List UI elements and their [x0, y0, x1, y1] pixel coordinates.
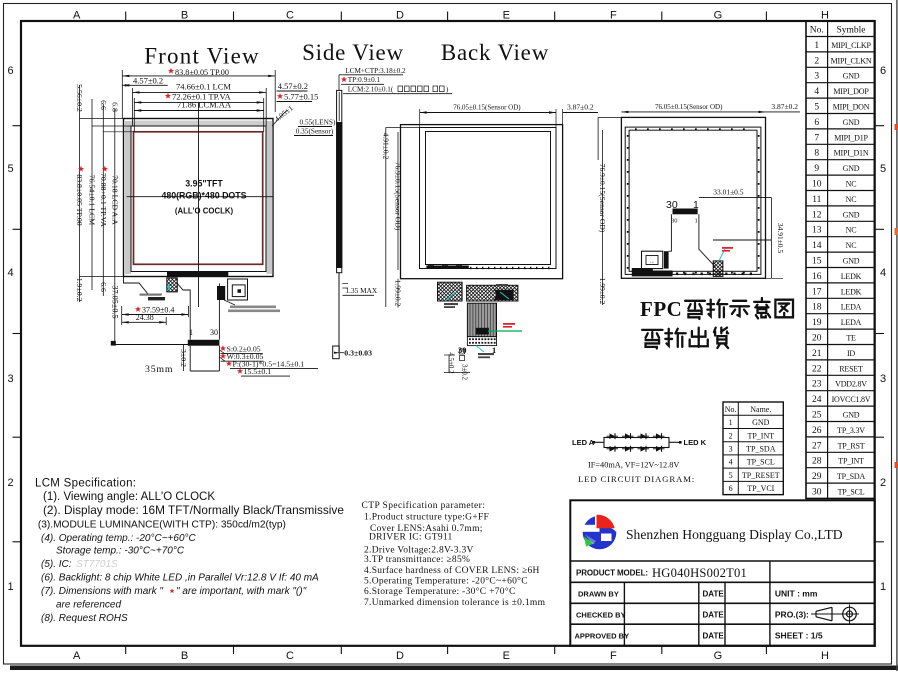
- svg-text:DRIVER IC: GT911: DRIVER IC: GT911: [369, 533, 453, 543]
- svg-text:20: 20: [812, 334, 822, 344]
- svg-text:E: E: [503, 10, 510, 22]
- svg-text:21: 21: [812, 349, 822, 359]
- svg-text:MIPI_CLKN: MIPI_CLKN: [831, 56, 872, 65]
- svg-text:3.95"TFT: 3.95"TFT: [185, 179, 223, 189]
- svg-text:TP_RST: TP_RST: [838, 441, 865, 450]
- svg-text:TP_SDA: TP_SDA: [746, 444, 776, 453]
- svg-text:PRODUCT MODEL:: PRODUCT MODEL:: [576, 569, 648, 578]
- svg-text:CHECKED BY: CHECKED BY: [576, 611, 626, 620]
- svg-text:(1). Viewing angle: ALL'O C: (1). Viewing angle: ALL'O CLOCK: [43, 491, 215, 503]
- svg-text:37.05±0.5: 37.05±0.5: [110, 285, 119, 318]
- svg-text:LED CIRCUIT DIAGRAM:: LED CIRCUIT DIAGRAM:: [578, 474, 695, 484]
- svg-text:LED K: LED K: [684, 438, 707, 447]
- svg-text:9: 9: [814, 164, 819, 174]
- svg-text:VDD2.8V: VDD2.8V: [835, 380, 867, 389]
- svg-text:TP_VCI: TP_VCI: [747, 484, 774, 493]
- svg-text:3: 3: [729, 444, 733, 453]
- svg-text:5: 5: [814, 103, 819, 113]
- svg-text:E: E: [503, 650, 510, 662]
- svg-text:ST7701S: ST7701S: [76, 559, 118, 570]
- svg-text:6: 6: [729, 484, 733, 493]
- svg-text:35mm: 35mm: [145, 364, 173, 375]
- svg-text:5.77±0.15: 5.77±0.15: [284, 92, 318, 102]
- svg-text:4: 4: [814, 87, 819, 97]
- svg-text:H: H: [821, 10, 829, 22]
- svg-text:6: 6: [880, 65, 886, 77]
- svg-text:16: 16: [812, 272, 822, 282]
- svg-text:3.TP transmittance: ≥85%: 3.TP transmittance: ≥85%: [364, 555, 470, 565]
- svg-text:LEDA: LEDA: [841, 303, 862, 312]
- svg-text:TP_SDA: TP_SDA: [837, 472, 866, 481]
- svg-text:FPC: FPC: [640, 297, 682, 321]
- svg-text:3.87±0.2: 3.87±0.2: [567, 103, 594, 112]
- svg-text:UNIT : mm: UNIT : mm: [775, 589, 818, 599]
- svg-text:5.56±0.2: 5.56±0.2: [75, 84, 84, 112]
- svg-text:LEDK: LEDK: [841, 272, 862, 281]
- svg-text:(7). Dimensions with mark: (7). Dimensions with mark ": [41, 586, 163, 597]
- svg-text:3: 3: [7, 373, 13, 385]
- svg-text:F: F: [610, 10, 617, 22]
- svg-text:LCM Specification:: LCM Specification:: [35, 478, 136, 490]
- svg-text:GND: GND: [843, 257, 860, 266]
- svg-text:MIPI_CLKP: MIPI_CLKP: [831, 41, 871, 50]
- svg-text:H: H: [821, 650, 829, 662]
- svg-text:30: 30: [812, 488, 822, 498]
- svg-text:LED A: LED A: [572, 438, 595, 447]
- svg-text:76.05±0.15(Sensor OD): 76.05±0.15(Sensor OD): [453, 104, 521, 112]
- svg-text:DATE: DATE: [703, 611, 725, 620]
- svg-text:LCM:2.10±0.1(: LCM:2.10±0.1(: [348, 86, 394, 94]
- svg-text:" are important, with mark: " are important, with mark "()": [176, 586, 307, 597]
- svg-text:6.6: 6.6: [99, 100, 108, 110]
- svg-text:APPROVED BY: APPROVED BY: [575, 632, 630, 641]
- svg-text:5.Operating Temperature: -20°: 5.Operating Temperature: -20°C~+60°C: [364, 576, 528, 587]
- svg-text:14: 14: [812, 241, 822, 251]
- svg-text:7.Unmarked dimension tolerance: 7.Unmarked dimension tolerance is ±0.1mm: [364, 598, 546, 608]
- svg-text:6.Storage Temperature: -30°C: 6.Storage Temperature: -30°C +70°C: [364, 586, 516, 597]
- svg-text:B: B: [181, 10, 188, 22]
- svg-text:LEDA: LEDA: [841, 318, 862, 327]
- svg-text:Back View: Back View: [441, 40, 549, 65]
- svg-text:1: 1: [7, 581, 13, 593]
- svg-text:18: 18: [812, 303, 822, 313]
- svg-text:13: 13: [812, 226, 822, 236]
- svg-text:1: 1: [814, 41, 819, 51]
- svg-text:TP_SCL: TP_SCL: [838, 488, 865, 497]
- svg-text:GND: GND: [843, 118, 860, 127]
- svg-text:8: 8: [814, 149, 819, 159]
- svg-text:IOVCC1.8V: IOVCC1.8V: [832, 395, 871, 404]
- svg-text:4: 4: [880, 267, 886, 279]
- svg-text:are referenced: are referenced: [56, 600, 121, 611]
- svg-text:76.54±0.1 LCM: 76.54±0.1 LCM: [88, 175, 97, 225]
- svg-text:15: 15: [812, 257, 822, 267]
- svg-text:0.3±0.03: 0.3±0.03: [344, 349, 372, 358]
- svg-text:LEDK: LEDK: [841, 287, 862, 296]
- svg-text:IF=40mA, VF=12V~12.8V: IF=40mA, VF=12V~12.8V: [588, 461, 679, 470]
- svg-text:(8). Request ROHS: (8). Request ROHS: [41, 613, 128, 624]
- svg-text:C: C: [286, 650, 294, 662]
- svg-text:ID: ID: [847, 349, 855, 358]
- svg-text:LCM+CTP:3.18±0.2: LCM+CTP:3.18±0.2: [345, 67, 406, 75]
- svg-text:0.35(Sensor): 0.35(Sensor): [296, 127, 334, 136]
- svg-text:30: 30: [210, 328, 218, 337]
- svg-text:GND: GND: [843, 210, 860, 219]
- svg-text:TP_INT: TP_INT: [838, 457, 864, 466]
- svg-text:DATE: DATE: [703, 590, 725, 599]
- svg-text:4.57±0.2: 4.57±0.2: [133, 76, 163, 86]
- svg-text:12: 12: [812, 210, 822, 220]
- svg-text:F: F: [610, 650, 617, 662]
- svg-text:3: 3: [814, 72, 819, 82]
- svg-text:6: 6: [7, 65, 13, 77]
- svg-text:19: 19: [812, 318, 822, 328]
- svg-text:28: 28: [812, 457, 822, 467]
- svg-text:76.05±0.15(Sensor OD): 76.05±0.15(Sensor OD): [655, 103, 723, 111]
- svg-text:30: 30: [671, 218, 678, 225]
- svg-text:GND: GND: [843, 72, 860, 81]
- svg-text:(5). IC:: (5). IC:: [41, 559, 72, 570]
- svg-text:MIPI_D1P: MIPI_D1P: [834, 133, 868, 142]
- svg-text:No.: No.: [725, 405, 737, 414]
- svg-text:74.66±0.1 LCM: 74.66±0.1 LCM: [176, 82, 231, 92]
- svg-text:PRO.(3):: PRO.(3):: [775, 610, 809, 620]
- svg-text:Name.: Name.: [750, 405, 771, 414]
- svg-text:29: 29: [812, 472, 822, 482]
- svg-text:70.88+0.1 TP.VA: 70.88+0.1 TP.VA: [99, 173, 108, 227]
- svg-text:1: 1: [695, 218, 698, 225]
- svg-text:NC: NC: [846, 226, 857, 235]
- svg-text:5: 5: [880, 163, 886, 175]
- svg-text:MIPI_DON: MIPI_DON: [833, 103, 870, 112]
- svg-text:4: 4: [729, 458, 733, 467]
- svg-text:GND: GND: [843, 164, 860, 173]
- svg-text:MIPI_DOP: MIPI_DOP: [833, 87, 869, 96]
- svg-text:4: 4: [7, 267, 13, 279]
- svg-text:Symble: Symble: [836, 26, 865, 36]
- svg-text:No.: No.: [810, 26, 824, 36]
- svg-text:1.9±0.2: 1.9±0.2: [75, 278, 84, 302]
- svg-text:(ALL'O COCLK): (ALL'O COCLK): [175, 207, 234, 216]
- svg-text:G: G: [714, 650, 723, 662]
- svg-text:1: 1: [729, 418, 733, 427]
- svg-text:CTP Specification parameter:: CTP Specification parameter:: [362, 500, 486, 511]
- svg-text:NC: NC: [846, 241, 857, 250]
- svg-text:11: 11: [812, 195, 821, 205]
- svg-text:NC: NC: [846, 195, 857, 204]
- svg-text:Storage temp.: -30°C~+70°C: Storage temp.: -30°C~+70°C: [56, 546, 185, 557]
- svg-text:34.91±0.5: 34.91±0.5: [776, 223, 785, 254]
- svg-text:NC: NC: [846, 180, 857, 189]
- svg-text:TP_3.3V: TP_3.3V: [837, 426, 865, 435]
- svg-text:2: 2: [7, 477, 13, 489]
- svg-text:(6). Backlight: 8 chip Whit: (6). Backlight: 8 chip White LED ,in Par…: [41, 573, 319, 584]
- svg-text:4.57±0.2: 4.57±0.2: [278, 81, 308, 91]
- svg-text:B: B: [181, 650, 188, 662]
- svg-text:D: D: [396, 10, 404, 22]
- svg-text:3.87±0.2: 3.87±0.2: [771, 102, 798, 111]
- svg-text:A: A: [73, 650, 81, 662]
- svg-text:26: 26: [812, 426, 822, 436]
- svg-text:2: 2: [880, 477, 886, 489]
- svg-text:GND: GND: [843, 411, 860, 420]
- svg-text:TP:0.9±0.1: TP:0.9±0.1: [348, 76, 381, 84]
- svg-text:DATE: DATE: [703, 632, 725, 641]
- svg-text:A: A: [73, 10, 81, 22]
- svg-text:TP_INT: TP_INT: [747, 431, 774, 440]
- svg-text:83.8±0.05 TP.00: 83.8±0.05 TP.00: [75, 174, 84, 225]
- svg-text:1.Product structure type:G+FF: 1.Product structure type:G+FF: [364, 513, 489, 523]
- svg-text:1.35 MAX: 1.35 MAX: [346, 286, 378, 295]
- svg-text:MIPI_D1N: MIPI_D1N: [834, 149, 869, 158]
- svg-text:DRAWN BY: DRAWN BY: [578, 590, 619, 599]
- svg-text:10: 10: [812, 180, 822, 190]
- svg-text:4.Surface hardness of COVER LE: 4.Surface hardness of COVER LENS: ≥6H: [364, 565, 540, 576]
- svg-text:25: 25: [812, 411, 822, 421]
- svg-text:G: G: [714, 10, 723, 22]
- svg-text:HG040HS002T01: HG040HS002T01: [652, 566, 747, 580]
- svg-text:71.86 LCM.AA: 71.86 LCM.AA: [177, 100, 232, 110]
- svg-text:Shenzhen Hongguang Display Co.: Shenzhen Hongguang Display Co.,LTD: [626, 527, 843, 542]
- svg-text:24.38: 24.38: [136, 313, 154, 322]
- svg-text:6: 6: [814, 118, 819, 128]
- svg-text:GND: GND: [752, 418, 770, 427]
- svg-text:480(RGB)*480 DOTS: 480(RGB)*480 DOTS: [161, 191, 246, 201]
- svg-text:17: 17: [812, 287, 822, 297]
- svg-text:33.01±0.5: 33.01±0.5: [713, 188, 744, 197]
- svg-text:C: C: [286, 10, 294, 22]
- svg-text:2.Drive Voltage:2.8V-3.3V: 2.Drive Voltage:2.8V-3.3V: [364, 546, 474, 556]
- svg-text:1: 1: [880, 581, 886, 593]
- svg-text:TP_RESET: TP_RESET: [742, 471, 780, 480]
- svg-text:(4). Operating temp.: -20°C: (4). Operating temp.: -20°C~+60°C: [41, 533, 197, 544]
- svg-text:6.6: 6.6: [99, 282, 108, 292]
- svg-text:Side View: Side View: [302, 40, 404, 65]
- svg-text:22: 22: [812, 364, 822, 374]
- svg-text:...: ...: [650, 259, 655, 265]
- svg-text:24: 24: [812, 395, 822, 405]
- svg-text:3: 3: [880, 373, 886, 385]
- svg-text:RESET: RESET: [839, 364, 863, 373]
- svg-text:27: 27: [812, 441, 822, 451]
- svg-text:7: 7: [814, 133, 819, 143]
- svg-text:2: 2: [729, 431, 733, 440]
- svg-text:Front View: Front View: [144, 44, 260, 69]
- svg-text:TP_SCL: TP_SCL: [747, 458, 775, 467]
- svg-text:6.8: 6.8: [110, 102, 119, 112]
- svg-text:TE: TE: [846, 334, 856, 343]
- svg-text:5: 5: [7, 163, 13, 175]
- svg-text:0.55(LENS): 0.55(LENS): [300, 118, 336, 127]
- svg-text:SHEET : 1/5: SHEET : 1/5: [775, 631, 823, 641]
- svg-text:D: D: [396, 650, 404, 662]
- svg-text:5: 5: [729, 471, 733, 480]
- svg-text:4.5±0.2: 4.5±0.2: [447, 352, 455, 374]
- svg-text:70.18 LCD A.A: 70.18 LCD A.A: [110, 175, 119, 225]
- svg-text:15.5±0.1: 15.5±0.1: [244, 367, 272, 376]
- svg-text:2: 2: [814, 56, 819, 66]
- svg-text:(3).MODULE LUMINANCE(WITH CT: (3).MODULE LUMINANCE(WITH CTP): 350cd/m2…: [38, 519, 286, 530]
- svg-text:(2). Display mode: 16M TFT/: (2). Display mode: 16M TFT/Normally Blac…: [43, 503, 344, 517]
- svg-text:1: 1: [189, 328, 193, 337]
- svg-text:23: 23: [812, 380, 822, 390]
